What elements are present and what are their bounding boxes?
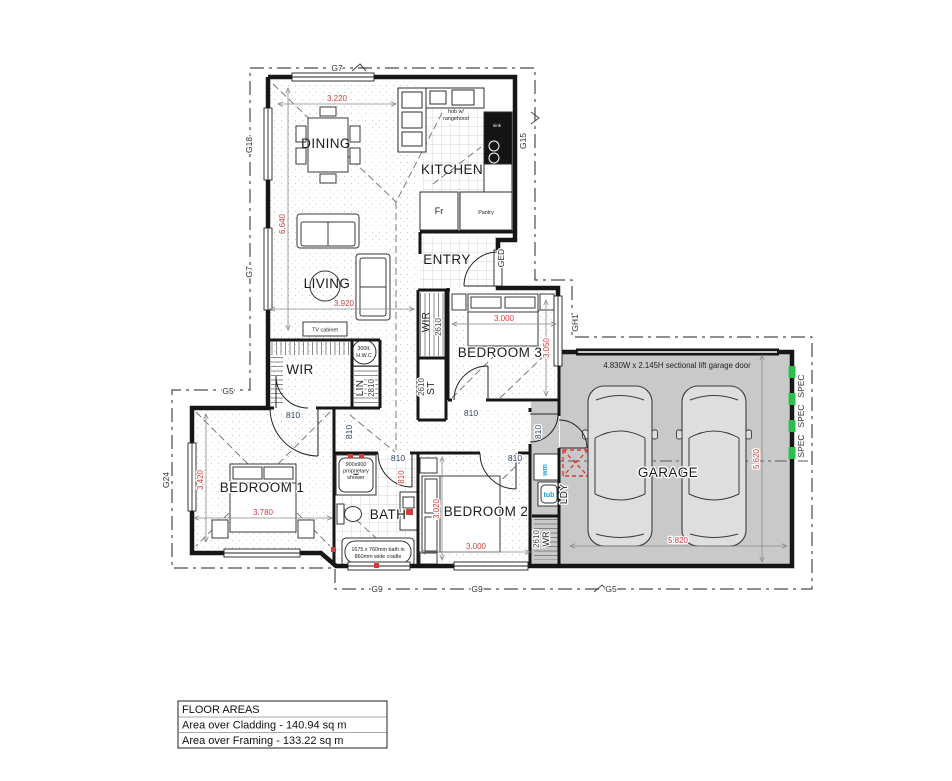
dim-bedroom1-height: 3.420 [196,469,205,490]
dim-living-width: 3.920 [334,299,355,308]
dim-bedroom2-width: 3.000 [466,542,487,551]
glazing-label-spec: SPEC [796,404,806,427]
hob-label-1: hob w/ [448,109,464,115]
door-width-label: 810 [344,425,354,439]
floor-areas-box: FLOOR AREAS Area over Cladding - 140.94 … [178,701,387,748]
dim-linen: 2810 [367,379,376,397]
tv-cabinet-label: TV cabinet [312,328,338,334]
shower-label-3: shower [347,475,365,481]
door-width-label: 810 [391,453,405,463]
shower-label-1: 900x900 [346,462,367,468]
room-label-store: ST [426,381,437,394]
bathtub-label-2: 860mm wide cradle [355,554,402,560]
toilet-bowl [345,507,362,522]
dim-wardrobe: 2610 [532,530,541,548]
glazing-label-bed3-right: GH1 [570,314,580,332]
room-label-garage: GARAGE [638,465,698,480]
bathtub-label-1: 1675 x 760mm bath in [351,547,404,553]
tub-label: tub [544,492,555,499]
room-label-bedroom1: BEDROOM 1 [220,480,305,495]
room-label-bedroom3: BEDROOM 3 [458,345,543,360]
floor-plan-page: DINING KITCHEN LIVING ENTRY WIR BEDROOM … [0,0,952,781]
hwc-label-2: H.W.C [356,353,372,359]
room-label-wir-entry: WIR [421,312,432,332]
glazing-label-left-upper: G18 [244,137,254,153]
sink-cooktop-unit [484,112,512,164]
hob-label-2: rangehood [443,116,469,122]
room-label-wir-main: WIR [286,362,313,377]
floor-areas-title: FLOOR AREAS [182,704,260,716]
dim-wir-entry: 2610 [434,318,443,336]
glazing-label-left-mid: G7 [244,266,254,278]
dim-bedroom1-width: 3.780 [253,508,274,517]
dim-garage-height: 5.620 [752,448,761,469]
glazing-label-spec: SPEC [796,434,806,457]
glazing-label-bottom-2: G9 [471,584,483,594]
fridge-label: Fr [435,206,444,216]
glazing-label-spec: SPEC [796,374,806,397]
dim-dining-height: 6.640 [278,213,287,234]
dim-garage-width: 5.820 [668,536,689,545]
shower-label-2: proprietary [343,469,369,475]
glazing-label-bed1-top: G5 [222,386,234,396]
glazing-label-entry-door: GED [496,249,506,267]
floor-areas-framing: Area over Framing - 133.22 sq m [182,735,343,747]
room-label-kitchen: KITCHEN [421,162,483,177]
glazing-label-right-upper: G15 [518,133,528,149]
dim-store: 2610 [417,378,426,396]
room-label-bath: BATH [370,507,407,522]
room-label-entry: ENTRY [423,252,471,267]
room-label-wardrobe: WR [541,531,551,546]
dim-bedroom3-height: 3.050 [542,337,551,358]
glazing-label-left-lower: G24 [161,472,171,488]
washing-machine-label: wm [542,464,549,477]
dim-bedroom3-width: 3.000 [494,314,515,323]
pantry-label: Pantry [478,210,494,216]
dim-dining-width: 3.220 [327,94,348,103]
room-label-dining: DINING [301,136,351,151]
dim-bedroom2-height: 3.020 [432,498,441,519]
door-width-label: 810 [508,453,522,463]
door-width-label: 810 [286,410,300,420]
door-width-label: 810 [464,408,478,418]
door-width-label: 810 [533,425,543,439]
glazing-label-bottom-1: G9 [371,584,383,594]
room-label-bedroom2: BEDROOM 2 [444,504,529,519]
room-label-laundry: LDY [559,484,570,504]
room-label-linen: LIN [355,380,366,396]
floor-plan: DINING KITCHEN LIVING ENTRY WIR BEDROOM … [0,0,952,781]
floor-areas-cladding: Area over Cladding - 140.94 sq m [182,720,346,732]
hwc-label-1: 300lt. [357,346,370,352]
dim-door-red: 810 [397,470,406,484]
glazing-label-top: G7 [331,63,343,73]
garage-door-label: 4.830W x 2.145H sectional lift garage do… [603,361,751,370]
room-label-living: LIVING [304,276,351,291]
toilet-cistern [337,504,344,524]
sink-label: sink [493,123,502,128]
glazing-label-bottom-3: G5 [605,584,617,594]
